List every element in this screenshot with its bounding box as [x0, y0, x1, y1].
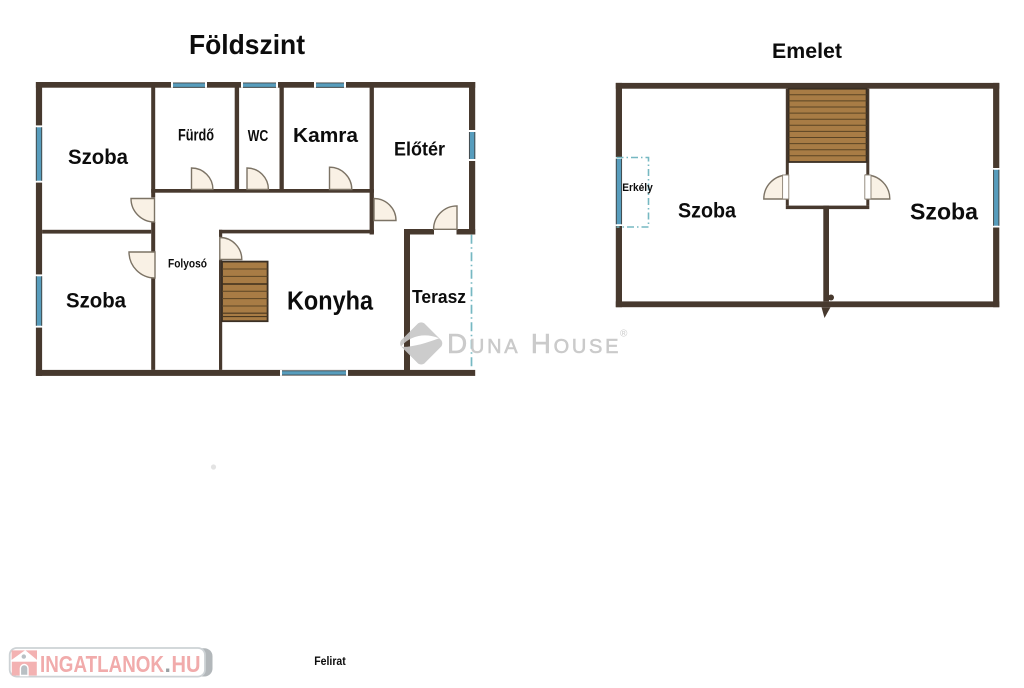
- svg-text:®: ®: [620, 329, 628, 340]
- svg-text:Szoba: Szoba: [678, 200, 736, 223]
- svg-text:Erkély: Erkély: [622, 182, 653, 194]
- svg-text:Szoba: Szoba: [68, 145, 129, 169]
- svg-text:Emelet: Emelet: [772, 40, 842, 63]
- svg-text:Előtér: Előtér: [394, 139, 445, 161]
- svg-text:INGATLANOK: INGATLANOK: [40, 651, 164, 677]
- svg-text:Földszint: Földszint: [189, 29, 305, 60]
- svg-text:Szoba: Szoba: [66, 289, 127, 313]
- svg-text:Konyha: Konyha: [287, 288, 374, 316]
- svg-text:.: .: [165, 651, 171, 677]
- svg-text:Felirat: Felirat: [314, 656, 346, 668]
- svg-text:HU: HU: [172, 651, 201, 677]
- svg-text:Terasz: Terasz: [412, 286, 466, 307]
- svg-text:Duna House: Duna House: [447, 328, 621, 359]
- svg-text:WC: WC: [248, 128, 269, 145]
- svg-text:Kamra: Kamra: [293, 125, 359, 147]
- svg-text:Szoba: Szoba: [910, 199, 978, 225]
- svg-text:Fürdő: Fürdő: [178, 127, 214, 145]
- svg-text:Folyosó: Folyosó: [168, 257, 207, 271]
